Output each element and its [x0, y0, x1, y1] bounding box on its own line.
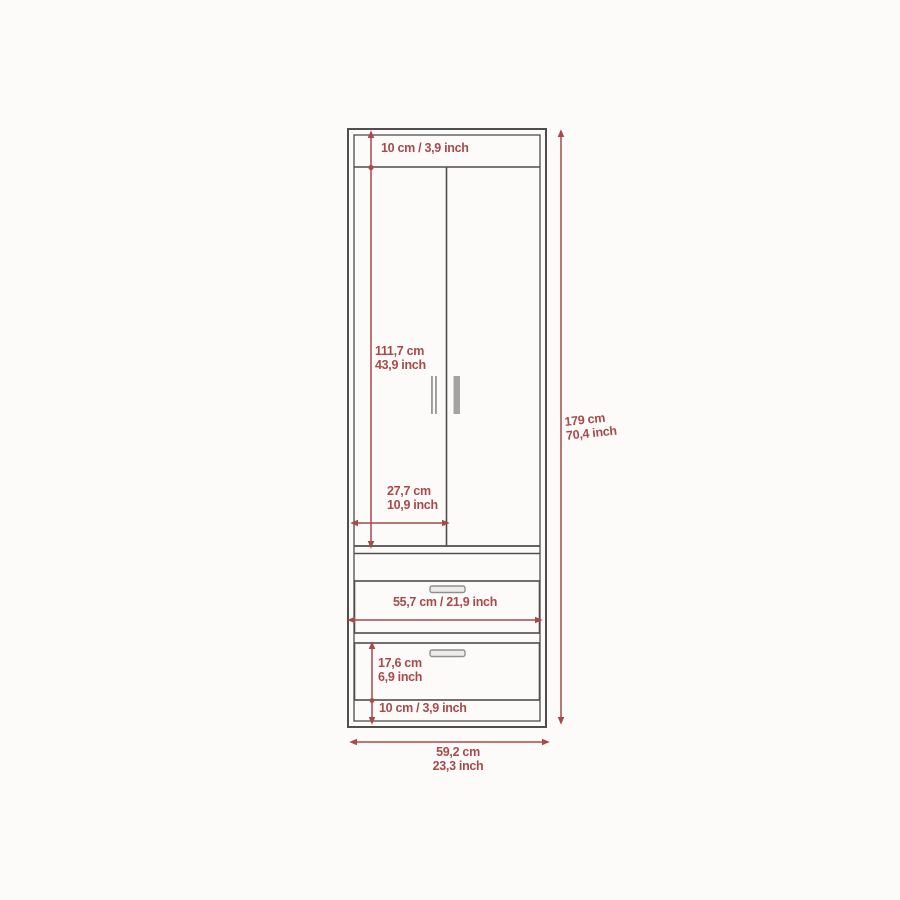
door-width-dimension-label: 27,7 cm 10,9 inch — [387, 485, 438, 512]
right-door-handle-icon — [454, 376, 461, 414]
drawer-height-dimension-label: 17,6 cm 6,9 inch — [378, 657, 422, 684]
drawer-height-cm: 17,6 cm — [378, 657, 422, 671]
handles — [430, 376, 465, 657]
door-height-dimension-label: 111,7 cm 43,9 inch — [375, 345, 426, 372]
total-width-inch: 23,3 inch — [358, 760, 558, 774]
door-height-inch: 43,9 inch — [375, 359, 426, 373]
drawer-width-dimension-label: 55,7 cm / 21,9 inch — [345, 596, 545, 610]
base-panel-dimension-label: 10 cm / 3,9 inch — [379, 702, 467, 716]
left-door-handle-icon — [431, 376, 433, 414]
door-width-cm: 27,7 cm — [387, 485, 438, 499]
total-width-cm: 59,2 cm — [358, 746, 558, 760]
drawer-1-handle-icon — [430, 586, 465, 593]
cabinet-outline — [348, 129, 546, 727]
left-door-handle-icon — [435, 376, 437, 414]
wardrobe-dimension-diagram: 10 cm / 3,9 inch 111,7 cm 43,9 inch 27,7… — [0, 0, 900, 900]
door-width-inch: 10,9 inch — [387, 499, 438, 513]
total-height-dimension-label: 179 cm 70,4 inch — [564, 411, 617, 443]
top-panel-dimension-label: 10 cm / 3,9 inch — [381, 142, 469, 156]
drawer-2-handle-icon — [430, 650, 465, 657]
total-width-dimension-label: 59,2 cm 23,3 inch — [358, 746, 558, 773]
drawer-height-inch: 6,9 inch — [378, 671, 422, 685]
door-height-cm: 111,7 cm — [375, 345, 426, 359]
